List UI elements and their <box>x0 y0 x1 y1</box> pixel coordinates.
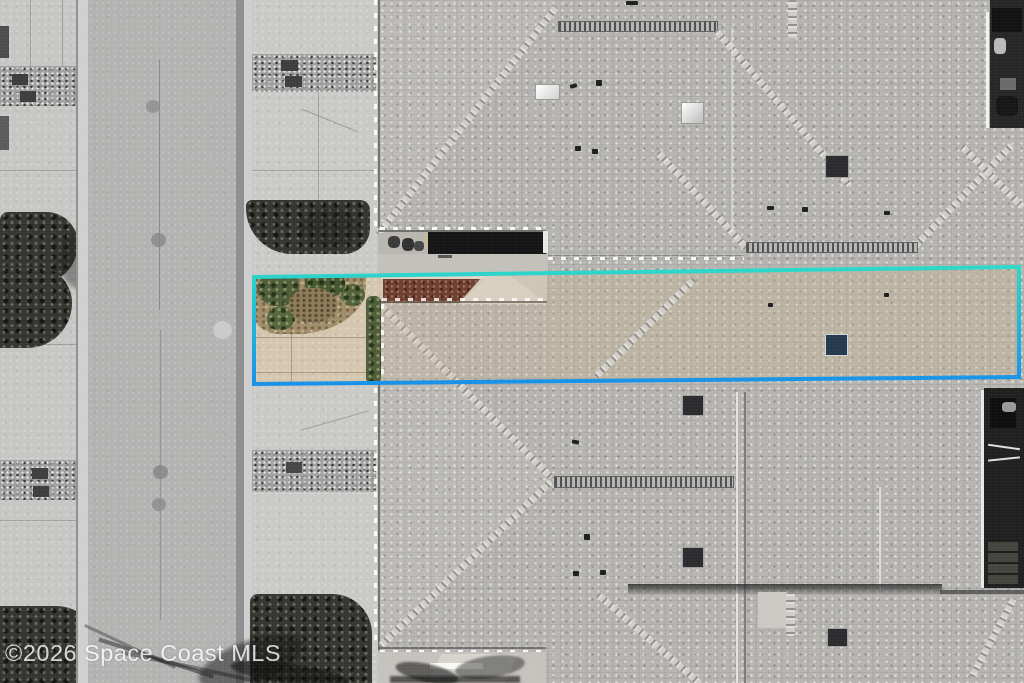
roof-vent-small <box>592 149 598 154</box>
curb <box>244 0 252 683</box>
roof-eave <box>378 0 380 234</box>
highlighted-parcel <box>253 266 1020 384</box>
roof-vent-small <box>884 211 890 215</box>
roof-vent-square <box>827 628 848 647</box>
ridge-cap-vertical <box>788 0 797 38</box>
shrub <box>341 284 365 306</box>
street-stain <box>152 498 166 511</box>
ridge-vent <box>558 21 718 32</box>
curb <box>236 0 244 683</box>
palm-shadow <box>390 676 520 683</box>
roof-vent-small <box>573 571 579 576</box>
street-stain <box>151 233 166 247</box>
patio-object <box>414 241 424 251</box>
aerial-photo: ©2026 Space Coast MLS <box>0 0 1024 683</box>
patio-object <box>438 255 452 258</box>
gutter <box>548 257 744 260</box>
wall-edge <box>543 231 548 253</box>
joint-line <box>0 170 82 171</box>
wall-edge <box>986 12 989 128</box>
patio-object <box>388 236 400 248</box>
tree-shadow <box>300 208 360 248</box>
roof-vent-square <box>825 155 849 178</box>
pebble-strip <box>0 66 80 106</box>
roof-vent-small <box>802 207 808 212</box>
wall-patch <box>758 592 788 628</box>
street <box>88 0 236 683</box>
roof-seam <box>879 487 881 590</box>
street-light-spot <box>213 321 232 339</box>
watermark: ©2026 Space Coast MLS <box>5 640 281 667</box>
roof-vent-square <box>682 547 704 568</box>
patio-object <box>992 8 1022 32</box>
chimney-cap <box>535 84 560 100</box>
valley-line <box>744 392 746 683</box>
roof-vent-square <box>682 395 704 416</box>
ridge-cap-vertical <box>786 592 795 636</box>
paver <box>20 91 36 102</box>
roof-vent-small <box>767 206 774 210</box>
patio-object <box>402 238 414 251</box>
paver <box>286 462 302 473</box>
roof-eave <box>548 255 744 256</box>
roof-vent-small <box>575 146 581 151</box>
roof-vent-small <box>768 303 773 307</box>
screened-patio-dark <box>428 232 546 254</box>
pebble-strip <box>252 450 376 492</box>
skylight <box>681 102 704 124</box>
gutter <box>381 304 384 384</box>
paver <box>285 76 302 87</box>
roof-vent-small <box>584 534 590 540</box>
gutter <box>374 0 377 234</box>
warm-tint <box>545 266 1020 384</box>
paver <box>12 74 28 85</box>
joint-line <box>318 92 319 200</box>
paver <box>33 486 49 497</box>
joint-line <box>252 170 378 171</box>
paver <box>281 60 298 71</box>
street-crack <box>159 60 160 310</box>
patio-tiles <box>988 540 1018 584</box>
ridge-vent <box>554 476 734 488</box>
joint-line <box>62 0 63 66</box>
pebble-strip <box>252 54 376 92</box>
bed-soil <box>289 288 337 322</box>
wall-edge <box>981 390 984 588</box>
roof-vent-small <box>884 293 889 297</box>
attic-vent-blue <box>825 334 848 356</box>
gutter <box>380 227 544 230</box>
roof-vent-small <box>596 80 602 86</box>
roof-eave <box>378 384 380 650</box>
paver <box>32 468 48 479</box>
joint-line <box>253 372 371 373</box>
eave-shadow <box>940 590 1024 594</box>
roof-seam <box>731 28 733 232</box>
street-stain <box>146 100 160 113</box>
left-edge-structure <box>0 26 9 58</box>
patio-object <box>994 38 1006 54</box>
street-stain <box>153 465 168 479</box>
gutter <box>374 388 377 642</box>
roof-eave <box>378 647 546 649</box>
patio-object <box>1002 402 1016 412</box>
valley-line <box>736 392 738 683</box>
left-edge-structure <box>0 116 9 150</box>
patio-object <box>996 96 1018 116</box>
patio-object <box>1000 78 1016 90</box>
joint-line <box>30 0 31 66</box>
roof-vent-small <box>600 570 606 575</box>
joint-line <box>253 337 367 338</box>
roof-vent-small <box>626 1 638 5</box>
ridge-vent <box>746 242 918 253</box>
foundation-hedge <box>366 296 381 384</box>
roof-eave <box>381 301 547 303</box>
joint-line <box>0 520 88 521</box>
